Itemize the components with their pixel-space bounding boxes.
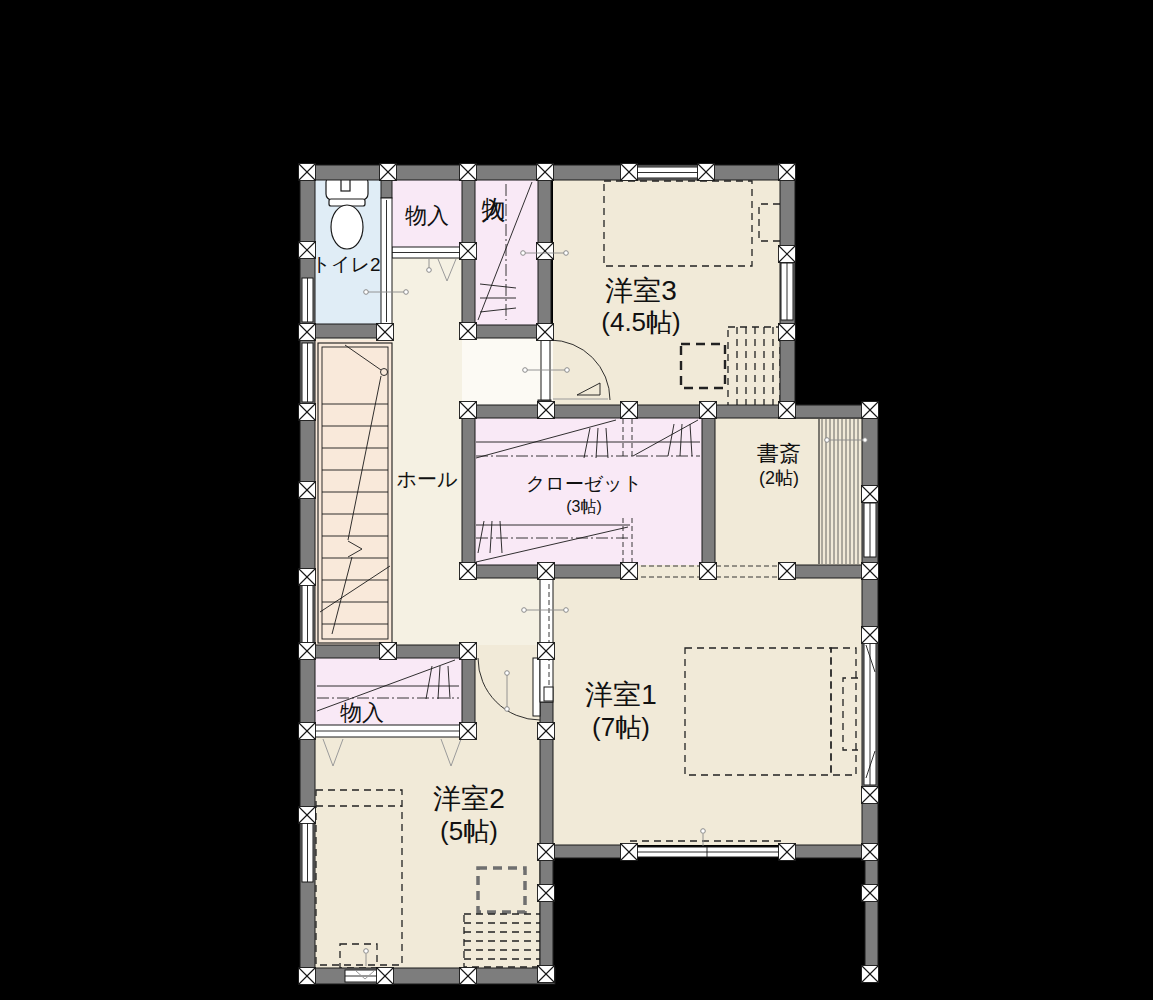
label-closet-size: (3帖)	[566, 498, 602, 515]
wall-junction-mark	[779, 402, 796, 419]
label-bedroom1-size: (7帖)	[592, 712, 650, 742]
wall-junction-mark	[538, 723, 555, 740]
wall-closet-study-divider	[702, 418, 715, 565]
label-bedroom1: 洋室1	[585, 679, 657, 710]
wall-junction-mark	[460, 643, 477, 660]
opening-study-to-bedroom1	[708, 565, 782, 578]
label-study: 書斎	[757, 441, 801, 466]
wall-junction-mark	[537, 324, 554, 341]
label-hall: ホール	[397, 468, 458, 490]
wall-junction-mark	[700, 402, 717, 419]
room-floor-hall-lower	[462, 578, 540, 645]
window-bedroom1-right	[864, 638, 876, 785]
wall-junction-mark	[537, 164, 554, 181]
wall-closet-left	[462, 418, 475, 578]
wall-junction-mark	[377, 324, 394, 341]
label-study-size: (2帖)	[759, 468, 799, 488]
window-stairs-left	[302, 343, 313, 402]
label-bedroom3: 洋室3	[605, 275, 677, 306]
wall-junction-mark	[779, 563, 796, 580]
wall-junction-mark	[862, 627, 879, 644]
floor-plan-page: トイレ2 物入 物入 洋室3 (4.5帖) ホール クローゼット (3帖) 書斎…	[0, 0, 1153, 1000]
wall-junction-mark	[299, 569, 316, 586]
door-opening-bedroom2	[475, 645, 540, 658]
wall-bottom-left	[300, 968, 555, 984]
wall-junction-mark	[299, 164, 316, 181]
label-closet: クローゼット	[526, 473, 642, 494]
wall-junction-mark	[299, 723, 316, 740]
window-hall-left	[302, 583, 313, 643]
wall-junction-mark	[779, 164, 796, 181]
opening-closet-to-bedroom1	[633, 565, 708, 578]
label-storage-bedroom2: 物入	[340, 700, 384, 725]
wall-junction-mark	[621, 563, 638, 580]
label-bedroom3-size: (4.5帖)	[601, 307, 680, 337]
wall-junction-mark	[698, 164, 715, 181]
wall-junction-mark	[862, 486, 879, 503]
wall-junction-mark	[299, 807, 316, 824]
wall-junction-mark	[621, 164, 638, 181]
window-bedroom2-left	[302, 822, 313, 882]
wall-junction-mark	[460, 323, 477, 340]
wall-junction-mark	[538, 885, 555, 902]
wall-junction-mark	[779, 324, 796, 341]
floor-plan: トイレ2 物入 物入 洋室3 (4.5帖) ホール クローゼット (3帖) 書斎…	[0, 0, 1153, 1000]
room-floor-staircase	[315, 340, 392, 645]
label-toilet: トイレ2	[312, 254, 381, 275]
window-study-right	[864, 503, 876, 557]
door-toilet	[381, 198, 392, 324]
wall-bedroom-divider	[540, 702, 553, 968]
wall-junction-mark	[862, 844, 879, 861]
wall-junction-mark	[862, 563, 879, 580]
wall-junction-mark	[538, 643, 555, 660]
wall-junction-mark	[621, 844, 638, 861]
label-bedroom2: 洋室2	[433, 783, 505, 814]
wall-junction-mark	[862, 885, 879, 902]
wall-junction-mark	[538, 844, 555, 861]
label-bedroom2-size: (5帖)	[440, 816, 498, 846]
wall-junction-mark	[537, 243, 554, 260]
window-bedroom3-top	[637, 167, 698, 178]
window-bedroom3-right	[781, 263, 793, 320]
wall-junction-mark	[621, 402, 638, 419]
wall-toilet-stub	[381, 180, 392, 198]
window-toilet-left	[302, 278, 313, 322]
wall-closet-top	[462, 405, 878, 418]
wall-junction-mark	[460, 723, 477, 740]
wall-junction-mark	[862, 402, 879, 419]
wall-junction-mark	[700, 563, 717, 580]
wall-junction-mark	[538, 966, 555, 983]
wall-junction-mark	[299, 324, 316, 341]
wall-junction-mark	[299, 482, 316, 499]
wall-junction-mark	[779, 246, 796, 263]
sliding-door-bedroom1	[540, 578, 553, 702]
label-storage-upper: 物入	[405, 203, 449, 228]
wall-junction-mark	[862, 787, 879, 804]
wall-junction-mark	[299, 404, 316, 421]
wall-junction-mark	[380, 643, 397, 660]
wall-junction-mark	[862, 966, 879, 983]
wall-junction-mark	[460, 402, 477, 419]
wall-junction-mark	[460, 968, 477, 985]
wall-junction-mark	[779, 844, 796, 861]
wall-junction-mark	[380, 164, 397, 181]
wall-balcony-right	[865, 858, 878, 978]
wall-junction-mark	[377, 968, 394, 985]
wall-junction-mark	[299, 968, 316, 985]
wall-junction-mark	[299, 643, 316, 660]
wall-junction-mark	[460, 164, 477, 181]
wall-junction-mark	[538, 402, 555, 419]
wall-junction-mark	[460, 563, 477, 580]
wall-junction-mark	[460, 243, 477, 260]
window-bedroom1-bottom	[633, 847, 780, 857]
wall-junction-mark	[538, 563, 555, 580]
